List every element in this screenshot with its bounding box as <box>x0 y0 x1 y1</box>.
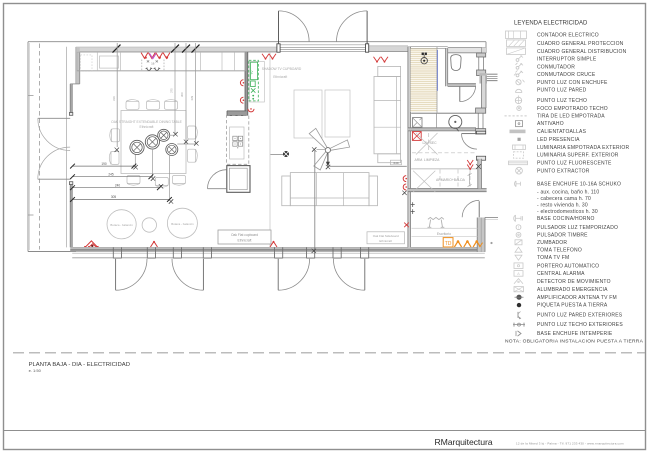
svg-text:TIRA DE LED EMPOTRADA: TIRA DE LED EMPOTRADA <box>537 114 605 120</box>
svg-text:PUNTO LUZ PARED EXTERIORES: PUNTO LUZ PARED EXTERIORES <box>537 313 623 319</box>
svg-text:TOMA TV FM: TOMA TV FM <box>537 255 569 261</box>
svg-text:PUNTO LUZ TECHO EXTERIORES: PUNTO LUZ TECHO EXTERIORES <box>537 322 623 328</box>
svg-text:300: 300 <box>180 92 184 97</box>
svg-text:AMPLIFICADOR ANTENA TV FM: AMPLIFICADOR ANTENA TV FM <box>537 295 617 301</box>
svg-text:PIQUETA PUESTA A TIERRA: PIQUETA PUESTA A TIERRA <box>537 303 608 309</box>
svg-text:NOTA: OBLIGATORIA INSTALACION: NOTA: OBLIGATORIA INSTALACION PUESTA A T… <box>505 339 644 345</box>
svg-text:INTERRUPTOR SIMPLE: INTERRUPTOR SIMPLE <box>537 57 597 63</box>
svg-text:LED PRESENCIA: LED PRESENCIA <box>537 137 580 143</box>
svg-text:PULSADOR TIMBRE: PULSADOR TIMBRE <box>537 232 588 238</box>
svg-text:PULSADOR LUZ TEMPORIZADO: PULSADOR LUZ TEMPORIZADO <box>537 225 618 231</box>
svg-text:319: 319 <box>112 96 116 101</box>
svg-text:CUADRO GENERAL DISTRIBUCION: CUADRO GENERAL DISTRIBUCION <box>537 49 627 55</box>
svg-text:- cabecera cama h. 70: - cabecera cama h. 70 <box>537 196 591 202</box>
svg-text:BASE ENCHUFE INTEMPERIE: BASE ENCHUFE INTEMPERIE <box>537 331 613 337</box>
svg-text:RMarquitectura: RMarquitectura <box>435 437 493 447</box>
svg-text:- electrodomesticos h. 30: - electrodomesticos h. 30 <box>537 209 598 215</box>
svg-text:PORTERO AUTOMATICO: PORTERO AUTOMATICO <box>537 263 599 269</box>
svg-text:240: 240 <box>115 183 121 187</box>
svg-text:Butaca - balancin: Butaca - balancin <box>110 223 133 227</box>
svg-text:- resto vivienda h. 30: - resto vivienda h. 30 <box>537 202 588 208</box>
svg-text:Butaca - balancin: Butaca - balancin <box>171 222 194 226</box>
svg-text:245: 245 <box>108 172 114 176</box>
svg-text:PUNTO EXTRACTOR: PUNTO EXTRACTOR <box>537 168 590 174</box>
svg-text:LUMINARIA SUPERF. EXTERIOR: LUMINARIA SUPERF. EXTERIOR <box>537 153 619 159</box>
svg-text:Ethnicraft: Ethnicraft <box>140 125 154 129</box>
svg-text:Ethnicraft: Ethnicraft <box>273 75 287 79</box>
svg-text:LEYENDA ELECTRICIDAD: LEYENDA ELECTRICIDAD <box>514 21 588 27</box>
svg-text:PUNTO LUZ CON ENCHUFE: PUNTO LUZ CON ENCHUFE <box>537 80 608 86</box>
svg-text:LUMINARIA EMPOTRADA EXTERIOR: LUMINARIA EMPOTRADA EXTERIOR <box>537 145 629 151</box>
svg-text:ALUMBRADO EMERGENCIA: ALUMBRADO EMERGENCIA <box>537 287 608 293</box>
svg-text:ARMARIO+BALDA: ARMARIO+BALDA <box>436 178 466 182</box>
svg-text:16: 16 <box>151 62 155 66</box>
svg-text:ZUMBADOR: ZUMBADOR <box>537 240 567 246</box>
svg-text:CALIENTATOALLAS: CALIENTATOALLAS <box>537 129 587 135</box>
svg-text:BASE ENCHUFE 10-16A SCHUKO: BASE ENCHUFE 10-16A SCHUKO <box>537 181 621 187</box>
svg-text:- aux. cocina, baño h. 110: - aux. cocina, baño h. 110 <box>537 190 599 196</box>
svg-text:ANTIVAHO: ANTIVAHO <box>537 121 564 127</box>
svg-text:305: 305 <box>111 195 117 199</box>
svg-text:190: 190 <box>101 162 107 166</box>
svg-text:e. 1:50: e. 1:50 <box>29 368 42 373</box>
svg-text:t: t <box>518 226 519 230</box>
svg-text:DETECTOR DE MOVIMIENTO: DETECTOR DE MOVIMIENTO <box>537 279 611 285</box>
svg-text:CENTRAL ALARMA: CENTRAL ALARMA <box>537 271 585 277</box>
svg-text:Ethnicraft: Ethnicraft <box>238 238 252 242</box>
svg-text:PLANTA BAJA - DIA - ELECTRICID: PLANTA BAJA - DIA - ELECTRICIDAD <box>29 362 130 368</box>
svg-text:Escritorio: Escritorio <box>437 232 451 236</box>
svg-text:TOMA TELEFONO: TOMA TELEFONO <box>537 248 582 254</box>
svg-text:Oak Flat cupboard: Oak Flat cupboard <box>231 233 258 237</box>
svg-text:375: 375 <box>170 88 174 93</box>
svg-text:CONTADOR ELECTRICO: CONTADOR ELECTRICO <box>537 33 599 39</box>
svg-text:Oak Flat Sideboard: Oak Flat Sideboard <box>373 234 399 238</box>
svg-text:PUNTO LUZ PARED: PUNTO LUZ PARED <box>537 88 587 94</box>
svg-text:PUNTO LUZ FLUORESCENTE: PUNTO LUZ FLUORESCENTE <box>537 161 612 167</box>
svg-text:CUADRO GENERAL PROTECCION: CUADRO GENERAL PROTECCION <box>537 41 624 47</box>
svg-text:OAK STRAIGHT EXTENDABLE DINING: OAK STRAIGHT EXTENDABLE DINING TABLE <box>111 120 183 124</box>
svg-text:TV: TV <box>250 71 254 75</box>
svg-text:12 de la Mised 3 bj - Palma -: 12 de la Mised 3 bj - Palma - Tlf. 971 2… <box>516 442 624 446</box>
svg-text:Ethnicraft: Ethnicraft <box>379 239 392 243</box>
svg-text:FOCO EMPOTRADO TECHO: FOCO EMPOTRADO TECHO <box>537 106 608 112</box>
svg-text:TD: TD <box>445 241 452 247</box>
svg-text:CONMUTADOR: CONMUTADOR <box>537 64 575 70</box>
svg-text:CONMUTADOR CRUCE: CONMUTADOR CRUCE <box>537 72 596 78</box>
svg-text:040: 040 <box>393 161 398 165</box>
svg-text:SHADOW TV CUPBOARD: SHADOW TV CUPBOARD <box>262 67 302 71</box>
svg-text:ARM. LIMPIEZA: ARM. LIMPIEZA <box>415 158 441 162</box>
svg-text:PUNTO LUZ TECHO: PUNTO LUZ TECHO <box>537 98 587 104</box>
svg-text:BASE COCINA/HORNO: BASE COCINA/HORNO <box>537 216 595 222</box>
svg-text:339: 339 <box>190 95 194 100</box>
svg-text:A: A <box>517 271 520 276</box>
